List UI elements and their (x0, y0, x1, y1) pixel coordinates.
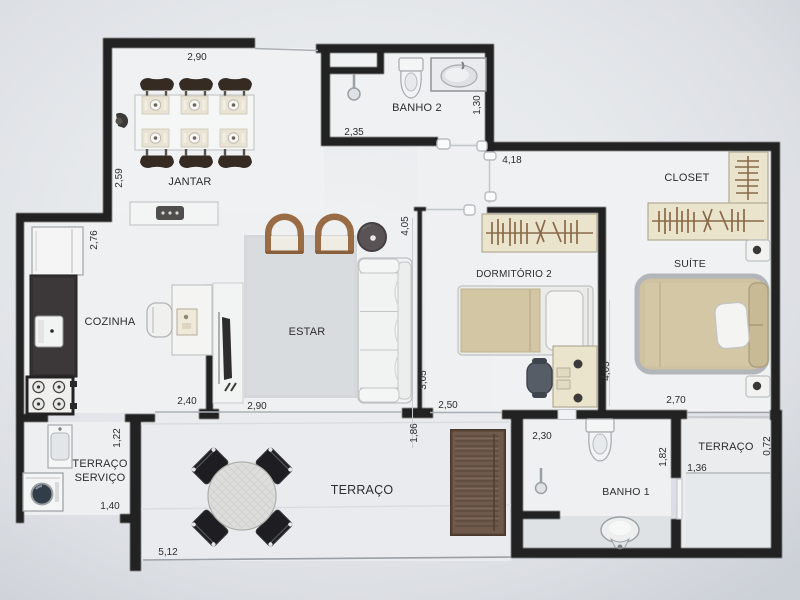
svg-text:2,30: 2,30 (532, 431, 552, 442)
svg-text:COZINHA: COZINHA (85, 316, 136, 328)
svg-text:1,30: 1,30 (472, 95, 483, 115)
svg-text:2,90: 2,90 (247, 401, 267, 412)
svg-text:2,35: 2,35 (344, 127, 364, 138)
svg-text:1,82: 1,82 (658, 447, 669, 467)
svg-text:4,18: 4,18 (502, 155, 522, 166)
svg-text:ESTAR: ESTAR (289, 326, 326, 338)
svg-text:BANHO 2: BANHO 2 (392, 102, 442, 114)
svg-text:1,36: 1,36 (687, 463, 707, 474)
svg-text:0,72: 0,72 (762, 436, 773, 456)
svg-text:TERRAÇO: TERRAÇO (331, 483, 394, 497)
svg-text:JANTAR: JANTAR (168, 176, 211, 188)
svg-text:3,05: 3,05 (418, 370, 429, 390)
svg-text:2,70: 2,70 (666, 395, 686, 406)
svg-text:2,90: 2,90 (187, 52, 207, 63)
svg-text:SUÍTE: SUÍTE (674, 257, 706, 270)
svg-text:1,22: 1,22 (112, 428, 123, 448)
svg-text:1,86: 1,86 (409, 423, 420, 443)
svg-text:2,59: 2,59 (114, 168, 125, 188)
svg-text:4,05: 4,05 (601, 361, 612, 381)
svg-text:2,40: 2,40 (177, 396, 197, 407)
svg-text:TERRAÇO: TERRAÇO (698, 441, 753, 453)
svg-text:2,76: 2,76 (89, 230, 100, 250)
svg-text:5,12: 5,12 (158, 547, 178, 558)
svg-text:1,40: 1,40 (100, 501, 120, 512)
svg-text:4,05: 4,05 (400, 216, 411, 236)
svg-text:DORMITÓRIO 2: DORMITÓRIO 2 (476, 267, 552, 280)
svg-text:SERVIÇO: SERVIÇO (75, 472, 126, 484)
svg-text:2,50: 2,50 (438, 400, 458, 411)
svg-text:CLOSET: CLOSET (664, 172, 709, 184)
svg-text:TERRAÇO: TERRAÇO (72, 458, 127, 470)
svg-text:BANHO 1: BANHO 1 (602, 486, 650, 498)
